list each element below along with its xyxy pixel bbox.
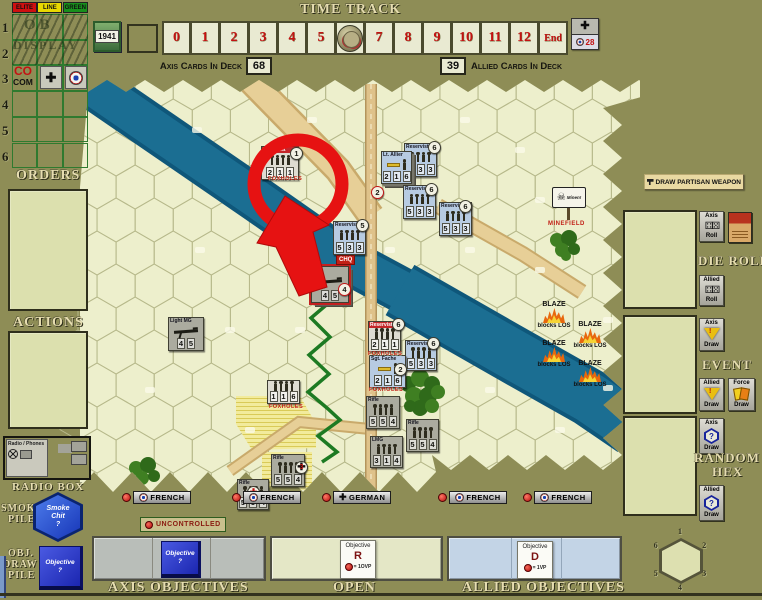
blaze-title: BLAZE [542,301,565,308]
blaze-marker: BLAZEblocks LOS [570,321,610,349]
minefield-label: MINEFIELD [548,221,585,227]
die-roll-box [623,210,697,309]
blaze-subtitle: blocks LOS [573,343,606,349]
event-triangle-icon: ! [703,388,720,401]
ob-watermark-line1: OB [24,17,54,34]
disc-number: 1 [294,149,298,158]
faction-bar-french: FRENCH [232,491,301,504]
soldier-icon [386,332,389,339]
ob-row-number: 6 [2,149,9,165]
radio-dial-icon [8,449,18,459]
flame-icon [579,328,601,343]
unit-counter[interactable]: 116 [267,380,300,404]
french-roundel-icon [139,493,148,502]
dice-icon: ⚃⚄ [705,285,718,296]
unit-value: 1 [280,391,288,402]
marker-disc-6[interactable]: 6 [425,183,438,196]
control-dot-icon [438,493,447,502]
game-window: Reservist211Reservist533Lt. Allier216Res… [0,0,762,600]
objective-card-line2: ? [58,567,62,575]
ob-row-number: 4 [2,97,9,113]
german-cross-icon: ✚ [339,493,347,502]
soldier-icon [388,447,391,454]
disc-number: 6 [396,320,400,329]
smoke-chit-line1: Smoke [47,505,70,513]
unit-value: 3 [346,242,354,253]
soldier-icon [390,408,393,415]
soldier-icon [457,214,460,221]
unit-counter[interactable]: Lt. Allier216 [381,151,412,184]
die-roll-title: DIE ROLL [698,253,762,269]
foxholes-label: FOXHOLES [269,404,303,410]
unit-value: 3 [356,242,364,253]
control-dot-icon [145,521,153,529]
unit-counter[interactable]: Light MG45 [168,317,204,351]
blaze-title: BLAZE [542,340,565,347]
faction-bar-plate: FRENCH [534,491,592,504]
soldier-icon [383,447,386,454]
smoke-pile-title-2: PILE [8,514,35,525]
actions-box[interactable] [8,331,88,429]
soldier-icon [357,233,360,240]
ob-grid-cell[interactable] [63,91,88,117]
unit-icon [268,381,299,391]
allied-event-label-b: Draw [704,402,719,409]
radio-sprite-icon [71,441,87,452]
soldier-icon [412,351,415,358]
unit-values: 216 [382,171,411,183]
unit-value: 1 [384,375,392,386]
allied-event-draw-button[interactable]: Allied ! Draw [699,378,724,411]
ob-row-number: 2 [2,46,9,62]
dice-icon: ⚃⚄ [705,221,718,232]
unit-values: 533 [440,223,471,235]
ob-grid-cell[interactable] [37,143,62,169]
ob-grid-cell[interactable] [63,143,88,169]
soldier-icon [427,197,430,204]
time-track-cell-12: 12 [510,21,539,55]
soldier-icon [290,466,293,473]
ob-grid-cell[interactable] [12,143,37,169]
french-roundel-icon [249,493,258,502]
obj-pile-title-2: DRAW [3,559,38,570]
flame-icon [579,367,601,382]
soldier-icon [374,408,377,415]
marker-disc-4[interactable]: 4 [338,283,351,296]
vp-token-axis-half: ✚ [572,19,598,35]
force-draw-label-bottom: Draw [734,402,749,409]
soldier-icon [280,384,283,391]
soldier-icon [452,214,455,221]
radio-tile[interactable]: Radio / Phones [6,439,48,477]
german-cross-icon: ✚ [580,21,589,32]
radio-box[interactable]: Radio / Phones [3,436,91,480]
soldier-icon [394,447,397,454]
blaze-subtitle: blocks LOS [573,382,606,388]
minefield-sign-text: Minen! [567,195,582,200]
ob-watermark-line2: DISPLAY [13,38,79,53]
pistol-icon [647,179,654,185]
ob-column-header-green: GREEN [63,2,88,13]
time-track-number: 1 [202,30,209,46]
time-track-number: 2 [231,30,238,46]
compass-number-1: 1 [678,527,682,536]
soldier-icon [419,431,422,438]
blaze-marker: BLAZEblocks LOS [570,360,610,388]
control-dot-icon [232,493,241,502]
french-roundel-icon [69,71,83,85]
unit-icon [367,403,399,416]
soldier-icon [274,384,277,391]
soldier-icon [279,466,282,473]
draw-partisan-weapon-label: DRAW PARTISAN WEAPON [656,179,741,186]
german-cross-icon: ✚ [46,71,57,84]
faction-bar-plate: ✚GERMAN [333,491,391,504]
radio-set-icon [20,450,32,459]
time-track-cell-8: 8 [394,21,423,55]
axis-hex-draw-button[interactable]: Axis ? Draw [699,418,724,454]
blaze-title: BLAZE [578,321,601,328]
axis-event-draw-button[interactable]: Axis ! Draw [699,318,724,351]
faction-bar-label: GERMAN [349,493,385,502]
unit-value: 5 [409,439,417,450]
marker-disc-6[interactable]: 6 [427,337,440,350]
unit-value: 3 [427,164,435,175]
unit-values: 554 [367,416,399,428]
random-hex-icon: ? [704,495,719,511]
allied-deck-label: Allied Cards In Deck [471,61,562,72]
faction-bar-german: ✚GERMAN [322,491,391,504]
unit-value: 3 [417,358,425,369]
soldier-icon [403,163,406,170]
faction-bar-plate: FRENCH [133,491,191,504]
time-track-number: End [544,33,562,44]
allied-roll-label-bottom: Roll [706,297,717,304]
faction-bar-label: FRENCH [260,493,294,502]
minefield-sign-post [567,208,570,220]
soldier-icon [410,197,413,204]
blaze-subtitle: blocks LOS [537,323,570,329]
unit-value: 1 [270,391,278,402]
ob-grid-cell[interactable] [12,91,37,117]
ob-row-number: 1 [2,20,9,36]
time-track-cell-10: 10 [452,21,481,55]
soldier-icon [446,214,449,221]
allied-hex-draw-button[interactable]: Allied ? Draw [699,485,724,521]
soldier-icon [430,431,433,438]
unit-values: 554 [407,439,438,451]
compass-number-2: 2 [702,541,706,550]
compass-number-5: 5 [654,569,658,578]
smoke-chit-face: Smoke Chit ? [36,495,80,539]
time-track-cell-0: 0 [162,21,191,55]
french-roundel-icon [455,493,464,502]
marker-disc-5[interactable]: 5 [356,219,369,232]
allied-hex-label-bottom: Draw [704,512,719,519]
foxholes-label: FOXHOLES [369,387,403,393]
co-label-bottom: COM [13,77,33,87]
force-draw-button[interactable]: Force Draw [728,378,755,411]
allied-event-label-top: Allied [703,380,719,387]
blaze-marker: BLAZEblocks LOS [534,301,574,329]
faction-bar-plate: FRENCH [449,491,507,504]
foxholes-label: FOXHOLES [368,351,402,357]
unit-value: 1 [393,171,401,182]
machinegun-icon [174,329,198,334]
marker-disc-3[interactable]: ✚3 [295,461,308,474]
blaze-marker: BLAZEblocks LOS [534,340,574,368]
unit-value: 4 [177,338,185,349]
unit-value: 5 [274,474,282,485]
marker-disc-2[interactable]: 2 [394,363,407,376]
unit-values: 533 [404,206,435,218]
unit-value: 4 [393,455,401,466]
unit-icon [407,426,438,439]
unit-values: 211 [369,339,400,351]
ob-grid-cell[interactable] [63,14,88,40]
allied-roll-label-top: Allied [703,277,719,284]
axis-deck-count: 68 [246,57,272,75]
soldier-icon [287,158,290,165]
allied-hex-label-top: Allied [703,487,719,494]
vp-value: 28 [586,38,595,47]
unit-value: 6 [394,375,402,386]
unit-value: 2 [371,339,379,350]
unit-value: 2 [374,375,382,386]
axis-roll-label-top: Axis [705,213,718,220]
leader-bar-icon [387,163,400,167]
vp-token-allied-half: 28 [572,35,598,49]
co-label-top: CO [14,66,32,77]
empty-slot-box[interactable] [127,24,158,53]
time-track-cell-3: 3 [249,21,278,55]
radio-box-right [49,438,89,478]
axis-deck-label: Axis Cards In Deck [140,61,242,72]
faction-bar-label: FRENCH [150,493,184,502]
marker-disc-6[interactable]: 6 [459,200,472,213]
marker-disc-6[interactable]: 6 [392,318,405,331]
allied-deck-count: 39 [440,57,466,75]
faction-bar-french: FRENCH [438,491,507,504]
time-track-cell-7: 7 [365,21,394,55]
soldier-icon [381,332,384,339]
ob-row-number: 3 [2,71,9,87]
faction-bar-label: FRENCH [466,493,500,502]
vp-token[interactable]: ✚ 28 [571,18,599,50]
soldier-icon [385,408,388,415]
unit-value: 5 [419,439,427,450]
axis-roll-button[interactable]: Axis ⚃⚄ Roll [699,211,724,242]
random-hex-box [623,416,697,516]
unit-counter[interactable]: Rifle554 [366,396,400,429]
compass-number-3: 3 [702,569,706,578]
time-track-number: 7 [376,30,383,46]
disc-number: 6 [432,143,436,152]
time-track-cell-11: 11 [481,21,510,55]
axis-hex-label-top: Axis [705,420,718,427]
disc-number: 4 [342,285,346,294]
allied-roll-button[interactable]: Allied ⚃⚄ Roll [699,275,724,306]
edge-panel-sliver [0,556,6,598]
unit-value: 5 [442,223,450,234]
control-dot-icon [122,493,131,502]
time-track-number: 0 [173,30,180,46]
ob-column-header-line: LINE [37,2,62,13]
unit-values: 45 [169,338,203,350]
disc-number: 6 [463,202,467,211]
orders-title: ORDERS [16,168,80,184]
event-triangle-icon: ! [703,328,720,341]
unit-value: 3 [452,223,460,234]
unit-values: 533 [334,242,365,254]
unit-value: 5 [379,416,387,427]
compass-number-6: 6 [654,541,658,550]
unit-value: 5 [369,416,377,427]
unit-values: 116 [268,391,299,403]
soldier-icon [340,233,343,240]
marker-disc-1[interactable]: 1 [290,147,303,160]
event-box [623,315,697,414]
marker-disc-2[interactable]: 2 [371,186,384,199]
time-marker-token[interactable] [337,25,363,52]
unit-values: 314 [371,455,402,467]
unit-icon [371,443,402,455]
time-track-cell-2: 2 [220,21,249,55]
year-label: 1941 [95,30,119,43]
smoke-chit-line2: Chit [51,513,65,521]
soldier-icon [463,214,466,221]
unit-values: 533 [406,358,436,370]
leader-bar-icon [378,367,391,371]
french-commander-tile[interactable] [65,66,87,89]
axis-event-label-bottom: Draw [704,342,719,349]
soldier-icon [423,351,426,358]
soldier-icon [422,155,425,162]
time-track-number: 11 [488,30,501,46]
unit-value: 5 [284,474,292,485]
objective-draw-pile[interactable]: Objective ? [39,546,83,590]
soldier-icon [428,155,431,162]
faction-bar-french: FRENCH [523,491,592,504]
unit-value: 3 [426,206,434,217]
disc-number: 2 [375,188,379,197]
unit-value: 4 [294,474,302,485]
compass-number-4: 4 [678,583,682,592]
force-cards-icon [733,388,750,401]
ob-grid-cell[interactable] [63,117,88,143]
unit-value: 1 [381,339,389,350]
flame-icon [543,347,565,362]
unit-value: 5 [187,338,195,349]
disc-number: 3 [300,464,304,471]
draw-partisan-weapon-button[interactable]: DRAW PARTISAN WEAPON [644,174,744,190]
soldier-icon [284,466,287,473]
obj-pile-title-1: OBJ. [8,548,34,559]
unit-icon [169,324,203,338]
time-track: 012345789101112End [162,21,568,55]
unit-value: 1 [383,455,391,466]
radio-box-title: RADIO BOX [12,481,84,493]
ob-row-number: 5 [2,123,9,139]
obj-pile-title-3: PILE [8,570,35,581]
french-roundel-icon [576,38,584,46]
unit-counter[interactable]: Rifle554 [406,419,439,452]
french-roundel-icon [540,493,549,502]
unit-counter[interactable]: LMG314 [370,436,403,468]
unit-value: 3 [417,164,425,175]
marker-disc-6[interactable]: 6 [428,141,441,154]
control-dot-icon [523,493,532,502]
chq-label: CHQ [336,255,355,265]
machinegun-icon [318,279,342,284]
soldier-icon [285,384,288,391]
year-counter[interactable]: 1941 [93,21,121,52]
smoke-chit-line3: ? [56,521,60,529]
soldier-icon [421,197,424,204]
radio-sprite-icon [71,454,87,465]
unit-value: 5 [406,206,414,217]
time-track-cell-6 [336,21,365,55]
unit-value: 6 [290,391,298,402]
time-track-number: 12 [517,30,531,46]
german-commander-tile[interactable]: ✚ [40,66,62,89]
orders-box[interactable] [8,189,88,311]
soldier-icon [271,158,274,165]
skull-icon: ☠ [557,193,566,203]
unit-values: 554 [272,474,304,486]
unit-value: 1 [391,339,399,350]
random-hex-title-2: HEX [712,464,743,480]
minefield-sign: ☠Minen! [552,187,586,208]
unit-value: 3 [373,455,381,466]
time-track-cell-5: 5 [307,21,336,55]
faction-bar-plate: FRENCH [243,491,301,504]
objective-card-line1: Objective [45,559,74,567]
unit-value: 4 [429,439,437,450]
disc-number: 6 [431,339,435,348]
disc-number: 6 [429,185,433,194]
ob-grid-cell[interactable] [12,117,37,143]
time-track-number: 8 [405,30,412,46]
unit-value: 4 [321,290,329,301]
ob-grid-cell[interactable] [37,91,62,117]
unit-value: 3 [462,223,470,234]
time-track-number: 9 [434,30,441,46]
soldier-icon [375,332,378,339]
unit-value: 5 [407,358,415,369]
flame-icon [543,308,565,323]
time-track-title: TIME TRACK [300,2,401,18]
event-title: EVENT [702,357,752,373]
unit-value: 6 [403,171,411,182]
axis-event-label-top: Axis [705,320,718,327]
blaze-title: BLAZE [578,360,601,367]
unit-value: 3 [427,358,435,369]
unit-value: 5 [336,242,344,253]
soldier-icon [417,351,420,358]
soldier-icon [424,431,427,438]
faction-bar-french: FRENCH [122,491,191,504]
time-track-number: 3 [260,30,267,46]
time-track-number: 10 [459,30,473,46]
ob-column-header-elite: ELITE [12,2,37,13]
axis-card-pile[interactable] [728,212,752,243]
soldier-icon [377,447,380,454]
uncontrolled-marker: UNCONTROLLED [140,517,226,532]
ob-grid-cell[interactable] [37,117,62,143]
time-track-number: 4 [289,30,296,46]
soldier-icon [291,384,294,391]
